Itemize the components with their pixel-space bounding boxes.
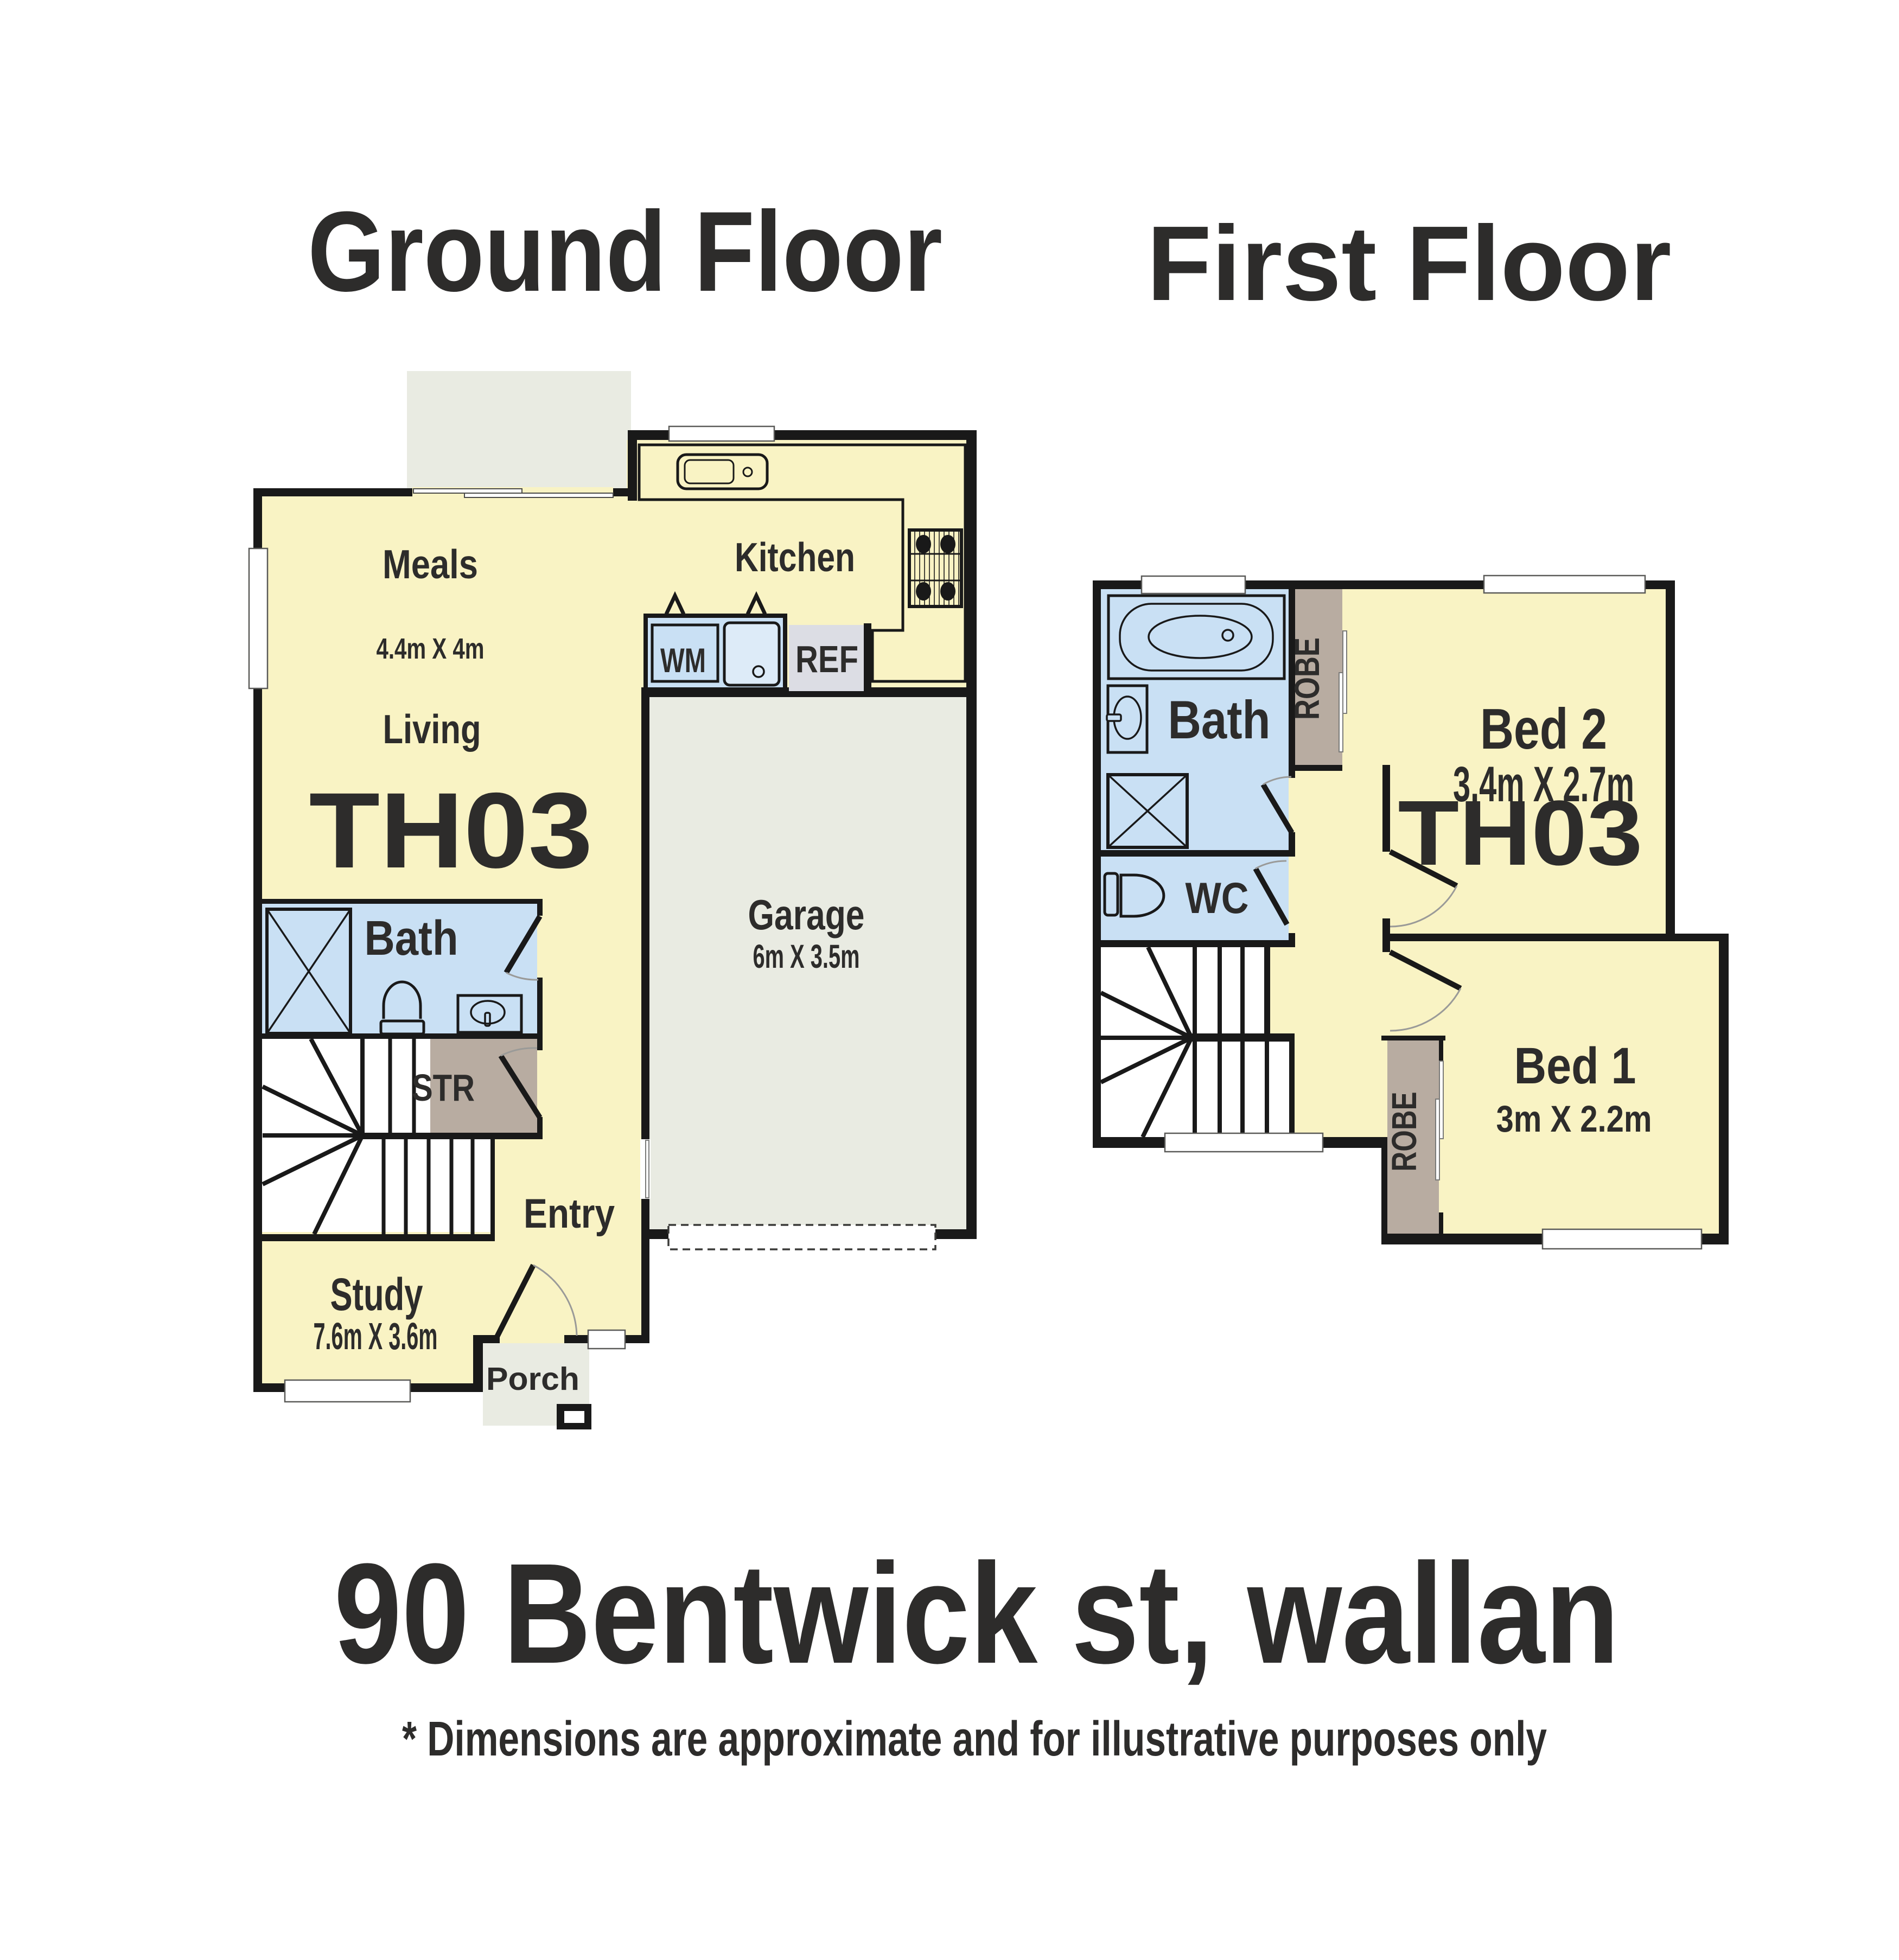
svg-text:Bed 2: Bed 2 [1480,697,1607,761]
svg-text:ROBE: ROBE [1288,637,1327,720]
svg-text:Study: Study [330,1269,423,1320]
svg-text:REF: REF [795,638,858,680]
svg-text:7.6m X 3.6m: 7.6m X 3.6m [314,1315,438,1357]
svg-text:Bed 1: Bed 1 [1514,1037,1636,1095]
svg-text:STR: STR [412,1067,475,1109]
svg-text:TH03: TH03 [1398,782,1643,885]
svg-text:Garage: Garage [748,891,865,938]
svg-text:WC: WC [1186,874,1249,923]
svg-text:3m X 2.2m: 3m X 2.2m [1496,1098,1652,1140]
svg-text:Meals: Meals [383,541,478,587]
svg-text:Porch: Porch [486,1361,579,1397]
svg-text:Kitchen: Kitchen [735,534,855,580]
svg-text:ROBE: ROBE [1385,1092,1424,1172]
svg-text:Entry: Entry [524,1191,615,1237]
svg-text:Ground Floor: Ground Floor [308,188,942,315]
svg-text:Bath: Bath [365,911,458,966]
svg-text:First Floor: First Floor [1147,204,1672,323]
svg-text:Living: Living [383,706,481,752]
svg-text:6m X 3.5m: 6m X 3.5m [753,938,860,975]
svg-text:WM: WM [660,642,706,680]
svg-text:TH03: TH03 [309,770,593,890]
svg-text:Bath: Bath [1168,689,1271,750]
svg-text:90 Bentwick st, wallan: 90 Bentwick st, wallan [334,1534,1620,1693]
svg-text:* Dimensions are approximate a: * Dimensions are approximate and for ill… [402,1712,1547,1766]
svg-text:4.4m X 4m: 4.4m X 4m [377,633,485,665]
